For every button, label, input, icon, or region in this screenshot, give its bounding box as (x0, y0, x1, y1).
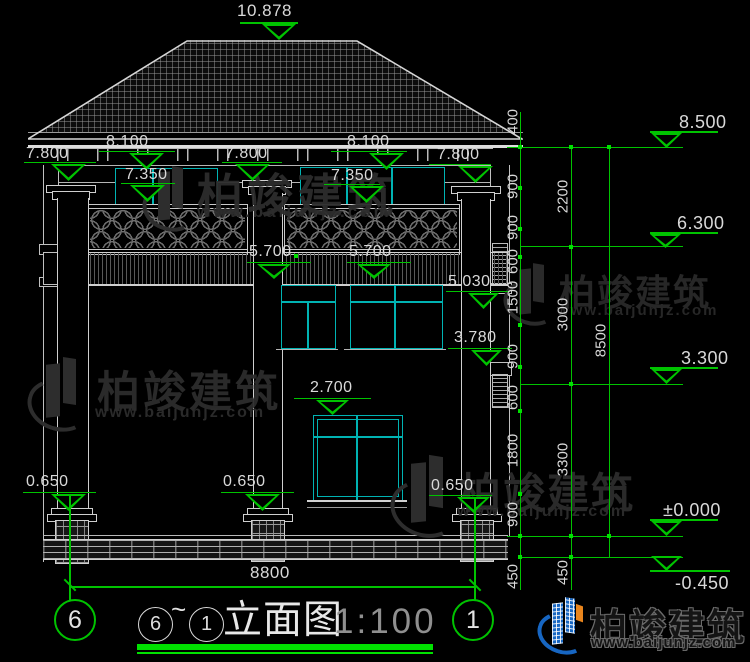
chain-value: 3300 (556, 430, 571, 490)
logo-orange-accent (576, 604, 583, 622)
column-shaft (57, 198, 89, 508)
window-sill (344, 349, 446, 350)
title-underline-thick (137, 644, 433, 650)
stray-point (294, 254, 298, 258)
level-ground: ±0.000 (663, 501, 721, 519)
chain-value: 600 (506, 368, 521, 428)
dim-line (222, 162, 282, 163)
dim-line-8800 (70, 586, 475, 588)
dim-eave-right-inner: 7.350 (331, 168, 374, 184)
level-triangle (262, 24, 296, 40)
level-triangle (651, 556, 682, 571)
dim-5030: 5.030 (448, 274, 491, 290)
logo-building (565, 597, 575, 634)
logo-building (533, 263, 544, 303)
dim-line (24, 162, 96, 163)
chain-value: 900 (506, 485, 521, 545)
level-triangle (235, 164, 270, 181)
dim-eave-left-inner: 7.350 (125, 167, 168, 183)
dim-plinth-center: 0.650 (223, 474, 266, 490)
dim-line (221, 492, 294, 493)
dim-line (247, 262, 311, 263)
level-triangle (468, 293, 499, 309)
level-triangle (651, 521, 682, 536)
stone-plinth (43, 539, 508, 560)
chain-value: 2200 (556, 167, 571, 227)
level-floor2: 6.300 (677, 214, 725, 232)
dim-eave-left-outer: 7.800 (26, 146, 69, 162)
watermark-logo (27, 358, 91, 432)
dim-tick (569, 534, 573, 538)
dim-plinth-right: 0.650 (431, 478, 474, 494)
level-triangle (650, 234, 681, 248)
window-mullion (307, 303, 309, 348)
dim-eave-right-outer: 7.800 (437, 147, 480, 163)
level-bar (650, 570, 730, 572)
logo-building (172, 166, 183, 209)
level-floor1: 3.300 (681, 349, 729, 367)
title-bubble-1: 1 (189, 607, 224, 642)
chain-line-middle (571, 147, 572, 590)
window-mullion (356, 416, 358, 500)
dim-line (448, 348, 512, 349)
floor2-window-left (281, 285, 336, 349)
drawing-scale: 1:100 (334, 604, 437, 639)
title-bubble-6: 6 (138, 607, 173, 642)
footer-logo (537, 598, 587, 655)
chain-value: 450 (556, 543, 571, 603)
level-triangle (257, 264, 291, 279)
level-triangle (130, 185, 165, 202)
logo-building (63, 357, 76, 405)
dim-tick (569, 245, 573, 249)
dim-2700: 2.700 (310, 380, 353, 396)
level-triangle (471, 350, 502, 366)
dim-line (429, 164, 491, 165)
chain-value: 8500 (594, 311, 609, 371)
window-mullion (314, 436, 402, 438)
watermark-site: www.baijunjz.com (197, 202, 392, 222)
grid-bubble-6: 6 (54, 599, 96, 641)
logo-building (552, 602, 563, 644)
dim-eave-right-upper: 8.100 (347, 134, 390, 150)
logo-swoosh (532, 606, 594, 661)
drawing-title: 立面图 (223, 601, 343, 640)
watermark-logo (390, 456, 460, 538)
level-triangle (51, 164, 86, 181)
chain-value: 3000 (556, 285, 571, 345)
dim-line (331, 151, 407, 152)
dim-eave-center: 7.800 (225, 146, 268, 162)
dim-plinth-left: 0.650 (26, 474, 69, 490)
logo-building (411, 462, 426, 523)
window-sill (276, 349, 338, 350)
dim-balcony-left: 5.700 (249, 244, 292, 260)
level-line-3300 (520, 384, 683, 385)
dim-line (324, 184, 380, 185)
dim-line (121, 183, 175, 184)
level-triangle (369, 153, 404, 170)
grid-bubble-1: 1 (452, 599, 494, 641)
level-triangle (349, 186, 384, 203)
dim-tick (569, 145, 573, 149)
dim-eave-left-upper: 8.100 (106, 134, 149, 150)
dim-balcony-right: 5.700 (349, 244, 392, 260)
dim-overall-width: 8800 (250, 564, 290, 581)
footer-site: www.baijunjz.com (591, 634, 736, 651)
dim-tick (569, 382, 573, 386)
watermark-site: www.baijunjz.com (557, 302, 718, 319)
level-triangle (651, 133, 682, 148)
logo-building (46, 363, 60, 418)
railing-bottom-rail (88, 249, 247, 250)
elevation-drawing-canvas: 柏竣建筑 www.baijunjz.com 柏竣建筑 www.baijunjz.… (0, 0, 750, 662)
dim-line (446, 291, 510, 292)
dim-tick (607, 534, 611, 538)
level-triangle (245, 494, 280, 511)
chain-value: 450 (506, 547, 521, 607)
dim-line (429, 495, 492, 496)
dim-ridge: 10.878 (237, 2, 292, 19)
floor2-window-center (350, 285, 443, 349)
dim-tick (607, 145, 611, 149)
dim-line (23, 492, 96, 493)
column-shaft (253, 193, 283, 508)
window-mullion (351, 301, 442, 303)
level-site: -0.450 (675, 574, 729, 592)
dim-line (99, 151, 175, 152)
level-eave: 8.500 (679, 113, 727, 131)
roof-outline (28, 40, 523, 140)
watermark-site: www.baijunjz.com (95, 404, 265, 422)
chain-value: 400 (506, 92, 521, 152)
title-tilde: ~ (171, 596, 187, 622)
level-triangle (357, 264, 391, 279)
level-line-zero (507, 536, 683, 537)
dim-3780: 3.780 (454, 330, 497, 346)
level-triangle (458, 166, 493, 183)
level-triangle (316, 400, 349, 415)
title-underline-thin (137, 652, 433, 654)
level-triangle (651, 369, 682, 384)
window-mullion (394, 286, 396, 348)
dim-line (294, 398, 371, 399)
chain-value: 1800 (506, 421, 521, 481)
window-inner-frame (317, 419, 399, 497)
chain-value: 1500 (506, 268, 521, 328)
dim-line (347, 262, 411, 263)
